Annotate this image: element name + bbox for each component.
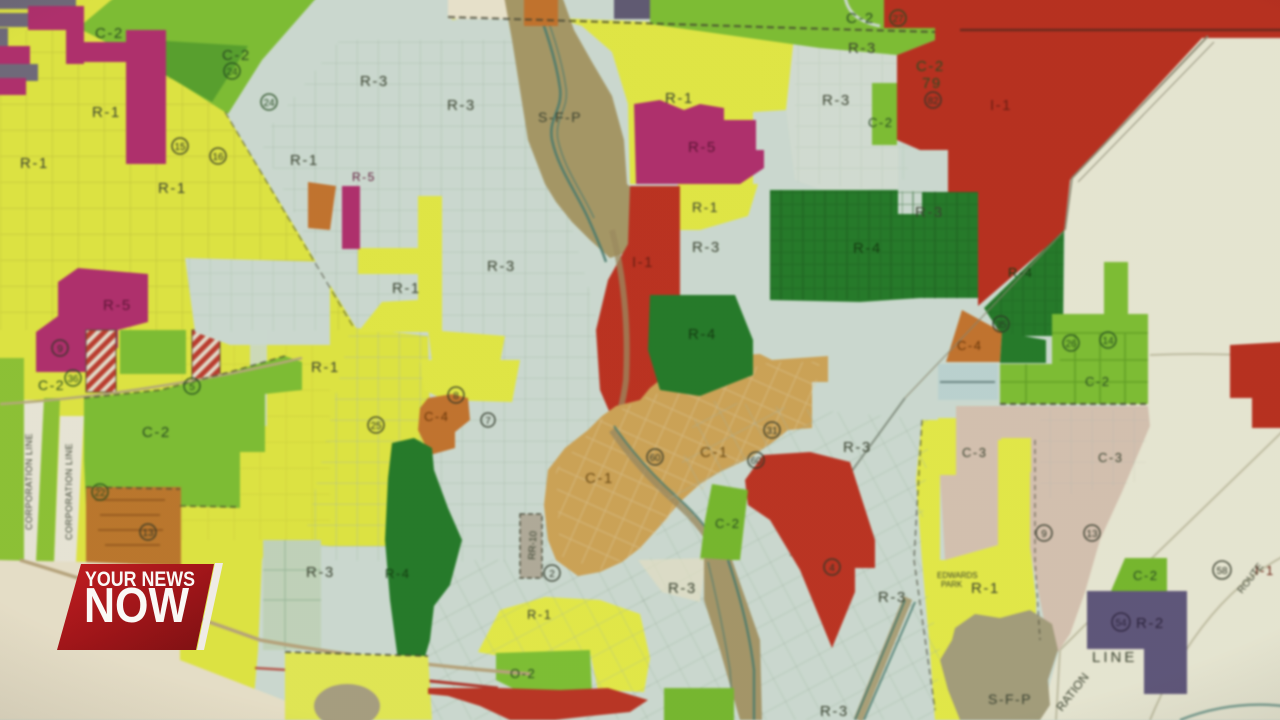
svg-text:NOW: NOW — [84, 579, 190, 633]
